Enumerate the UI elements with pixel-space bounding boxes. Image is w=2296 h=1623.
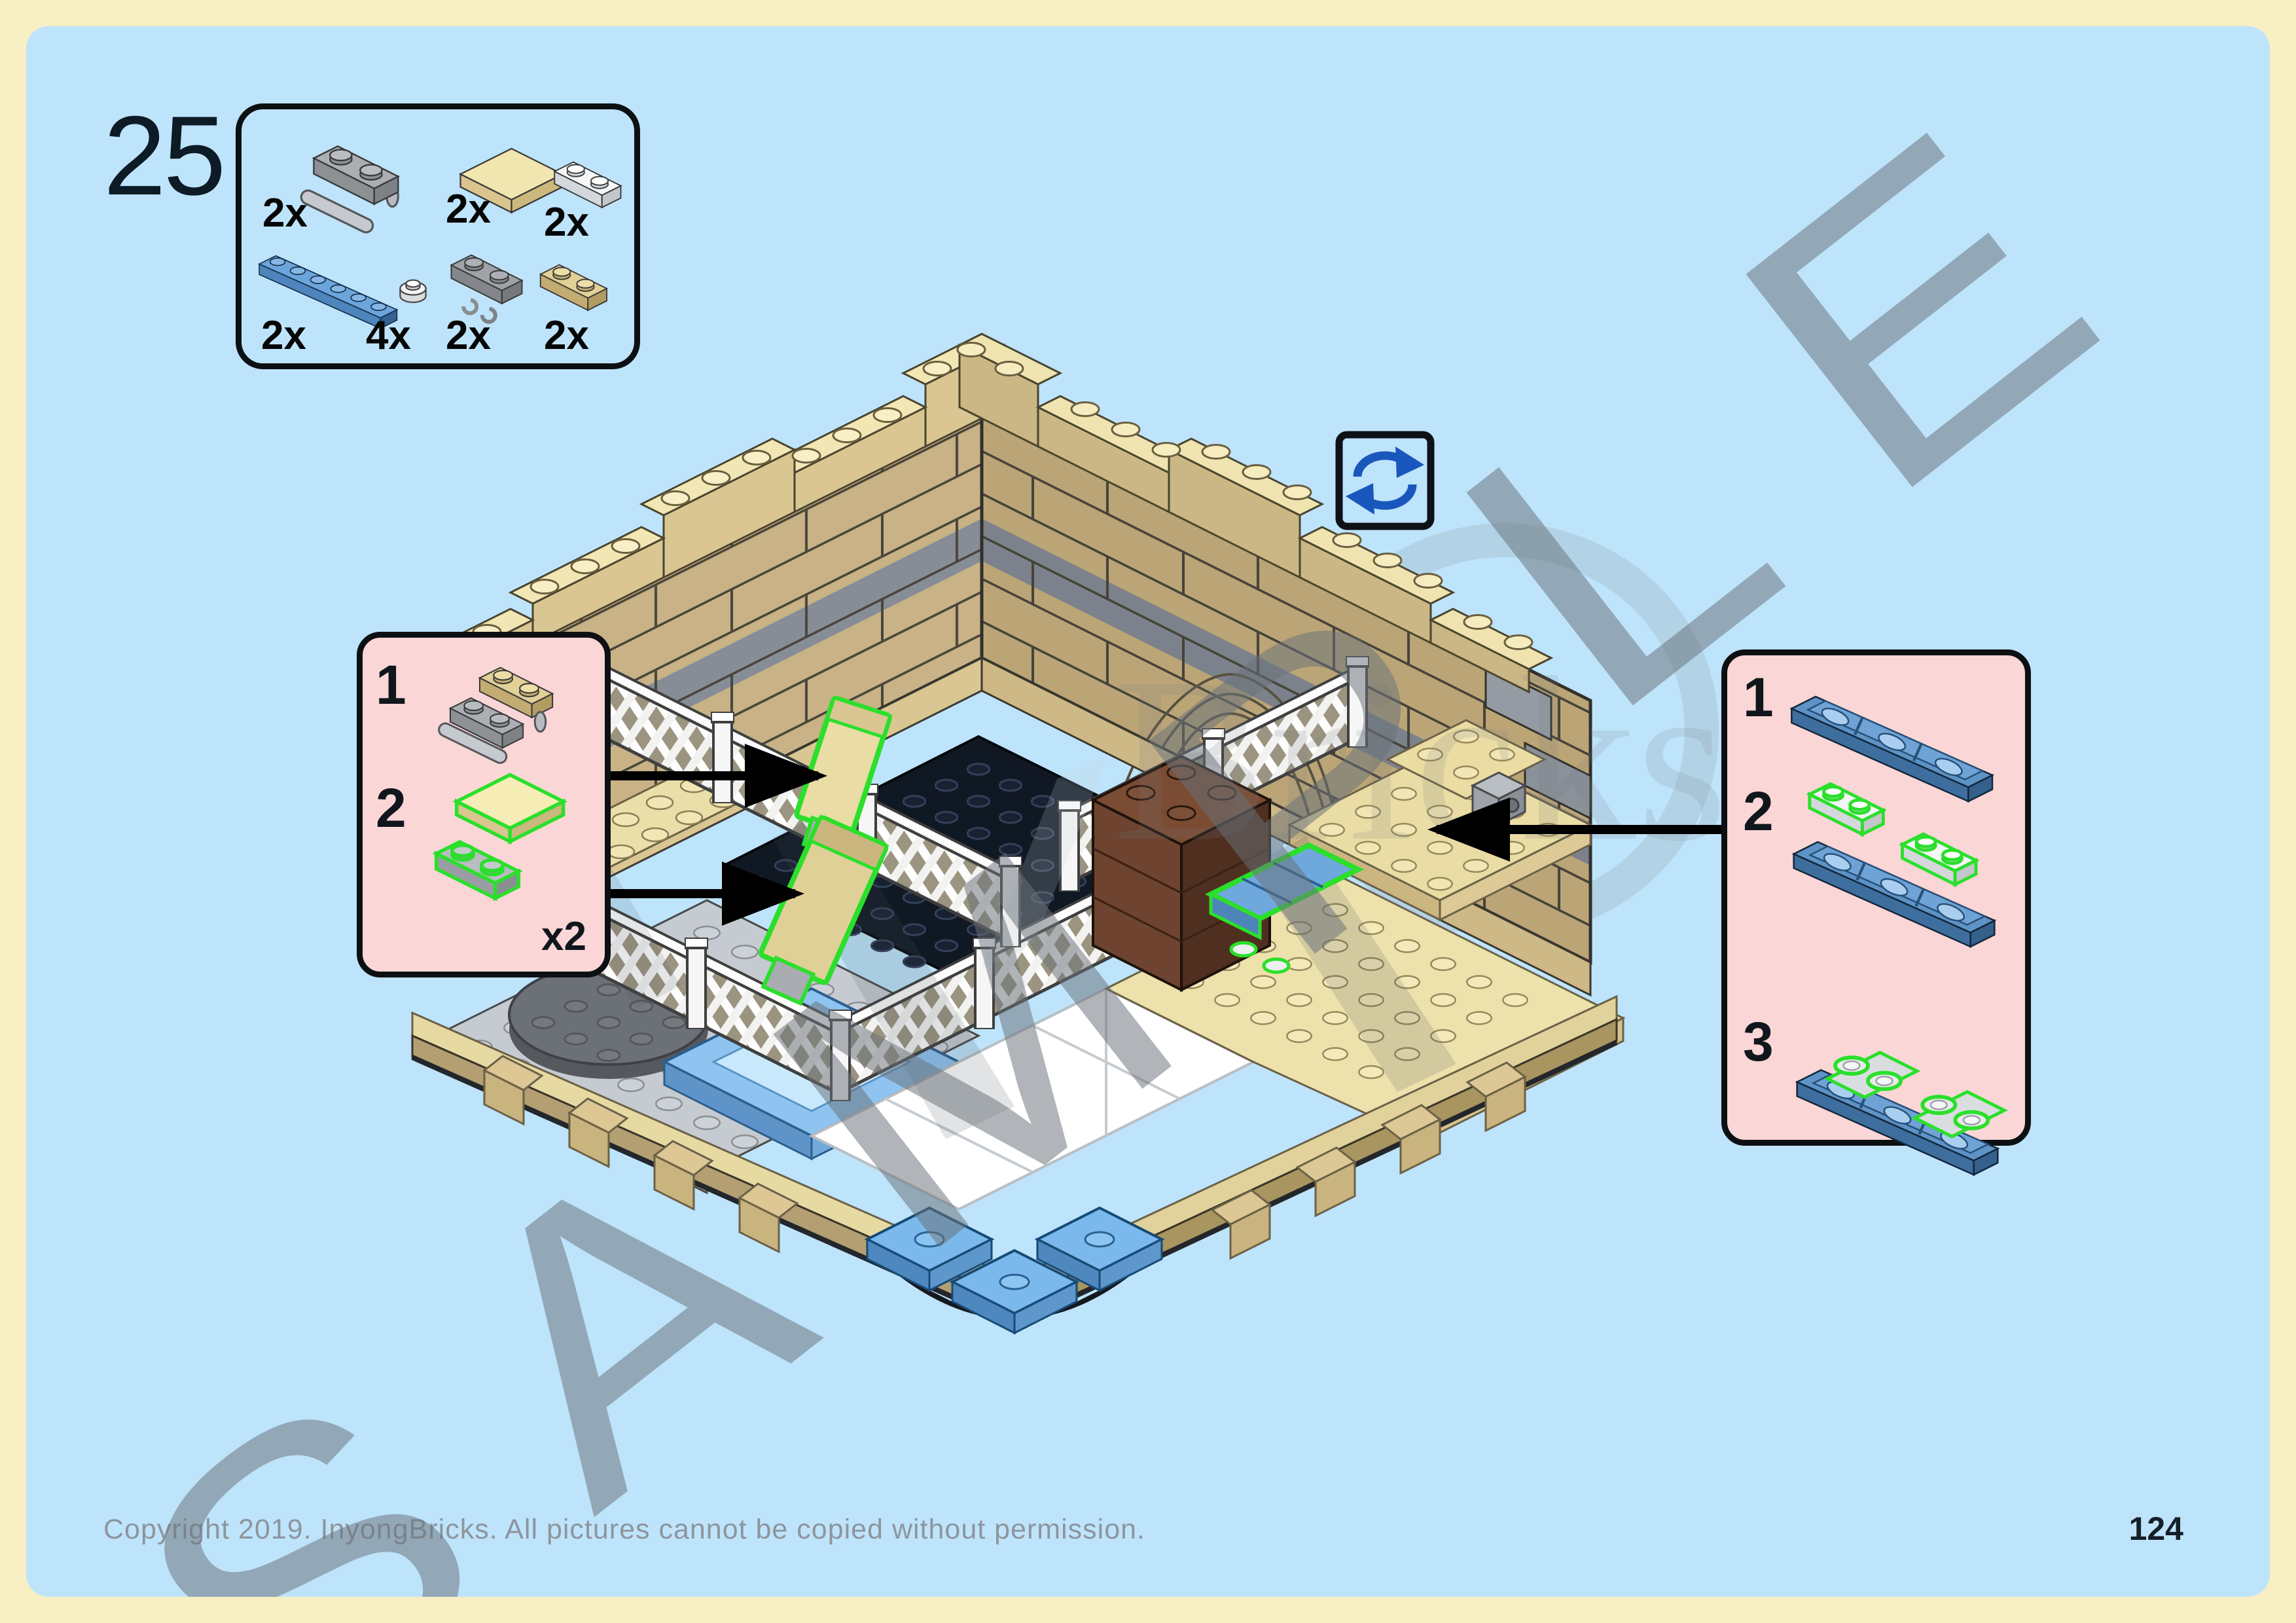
- callout-piece-blue-plate-white-plates: [1773, 760, 2015, 957]
- blue-corner-tiles: [867, 1208, 1162, 1333]
- callout-piece-handle-assembly: [418, 644, 582, 772]
- callout-step-number: 1: [1743, 670, 1774, 725]
- part-qty: 2x: [261, 316, 306, 356]
- callout-step-number: 2: [376, 780, 406, 835]
- callout-piece-green-hinge-tile: [415, 754, 585, 924]
- part-qty: 2x: [446, 189, 491, 230]
- callout-left: 1 2 x2: [357, 632, 611, 977]
- callout-right: 1 2 3: [1721, 649, 2031, 1146]
- callout-piece-blue-plate-round-plates: [1776, 983, 2018, 1179]
- page-number: 124: [2129, 1510, 2183, 1548]
- callout-step-number: 3: [1743, 1014, 1774, 1069]
- callout-multiplier: x2: [541, 913, 586, 960]
- callout-step-number: 2: [1743, 784, 1774, 839]
- part-qty: 2x: [544, 202, 589, 243]
- instruction-page: Bricks: [26, 26, 2270, 1597]
- copyright-text: Copyright 2019. InyongBricks. All pictur…: [103, 1514, 1145, 1546]
- callout-step-number: 1: [376, 657, 406, 712]
- rotate-view-icon: [1335, 431, 1435, 530]
- step-number: 25: [103, 100, 223, 212]
- part-thumb-plate-1x1-round: [391, 265, 435, 312]
